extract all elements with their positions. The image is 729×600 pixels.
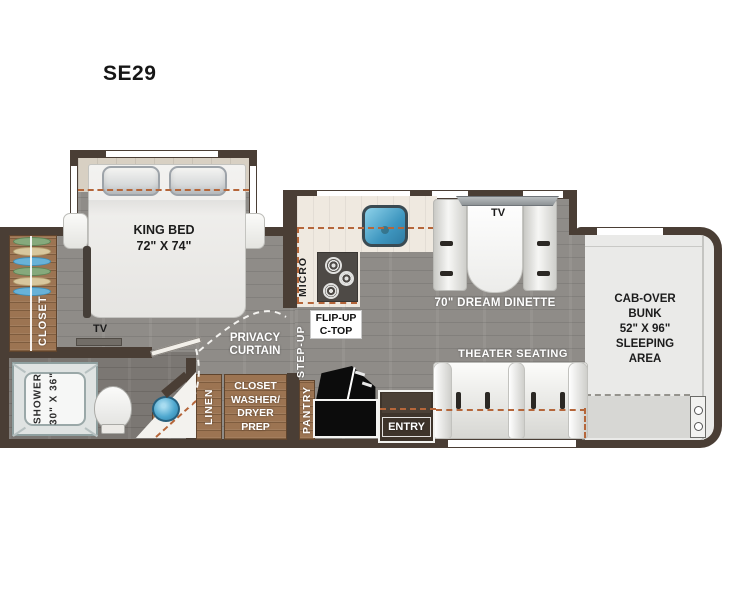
- shower-label-line1: SHOWER: [30, 374, 46, 424]
- hanging-clothes-icon: [13, 277, 51, 286]
- bedroom-tv-icon: [76, 338, 122, 346]
- theater-seating-label: THEATER SEATING: [443, 347, 583, 360]
- wall-left-exterior: [0, 227, 9, 448]
- bed-slideout-dashed: [78, 189, 249, 191]
- refrigerator-body: [313, 399, 378, 438]
- bunk-boundary-dashed: [585, 394, 690, 396]
- bedroom-tv-label: TV: [89, 322, 111, 336]
- linen-label: LINEN: [199, 376, 219, 438]
- window-cab-top: [597, 228, 663, 235]
- cab-console: [690, 396, 706, 438]
- seat-armrest: [508, 362, 525, 439]
- dinette-tv-icon: [456, 196, 559, 206]
- pillow: [102, 166, 160, 196]
- privacy-curtain-label: PRIVACY CURTAIN: [210, 331, 300, 359]
- seatbelt-clip: [537, 241, 550, 246]
- window-rear: [448, 440, 576, 447]
- closet-rod: [30, 236, 32, 351]
- hanging-clothes-icon: [13, 267, 51, 276]
- nightstand: [63, 213, 88, 249]
- dinette-tv-label: TV: [486, 206, 510, 220]
- bed-side-rail: [83, 246, 91, 318]
- recline-lever: [485, 392, 490, 409]
- hanging-clothes-icon: [13, 247, 51, 256]
- window-bedroom-top: [106, 151, 218, 157]
- recline-lever: [456, 392, 461, 409]
- bunk-edge-line: [585, 246, 703, 247]
- recline-lever: [531, 392, 536, 409]
- pantry-label: PANTRY: [300, 381, 314, 439]
- washer-dryer-label: CLOSET WASHER/ DRYER PREP: [224, 377, 287, 437]
- king-bed-label: KING BED 72" X 74": [98, 221, 230, 255]
- shower-label-line2: 30" X 36": [46, 374, 62, 424]
- hanging-clothes-icon: [13, 237, 51, 246]
- recline-lever: [560, 392, 565, 409]
- entry-dashed-line: [380, 408, 436, 410]
- wall-dinette-right: [569, 190, 577, 235]
- counter-dashed-top: [298, 227, 434, 229]
- closet-label: CLOSET: [34, 293, 52, 349]
- entry-step-tread: [382, 393, 431, 413]
- seatbelt-clip: [440, 241, 453, 246]
- slideout-dashed-vertical: [584, 408, 586, 438]
- seatbelt-clip: [537, 271, 550, 276]
- slideout-dashed-line: [436, 409, 586, 411]
- cab-over-bunk-label: CAB-OVER BUNK 52" X 96" SLEEPING AREA: [583, 290, 707, 368]
- cupholder-icon: [694, 406, 703, 415]
- burner-icon: [323, 283, 339, 299]
- dinette-label: 70" DREAM DINETTE: [418, 296, 572, 309]
- seatbelt-clip: [440, 271, 453, 276]
- step-up-label: STEP-UP: [293, 324, 309, 380]
- microwave-label: MICRO: [295, 250, 311, 304]
- hanging-clothes-icon: [13, 257, 51, 266]
- burner-icon: [339, 271, 354, 286]
- pillow: [169, 166, 227, 196]
- burner-icon: [325, 257, 342, 274]
- floorplan-canvas: SE29 CAB-OVER BUNK 52" X 96" SLEEPING AR…: [0, 0, 729, 600]
- flip-up-ctop-label: FLIP-UP C-TOP: [310, 310, 362, 339]
- window-bedroom-left: [71, 166, 77, 214]
- window-bedroom-right: [250, 166, 256, 214]
- toilet-base: [101, 424, 125, 434]
- seat-armrest: [433, 362, 452, 439]
- cupholder-icon: [694, 422, 703, 431]
- entry-label: ENTRY: [382, 417, 431, 437]
- bed-sheet-fold: [88, 200, 246, 216]
- floorplan-title: SE29: [103, 62, 156, 86]
- wall-pantry-divider: [287, 373, 299, 440]
- cab-dash-area: [583, 396, 690, 438]
